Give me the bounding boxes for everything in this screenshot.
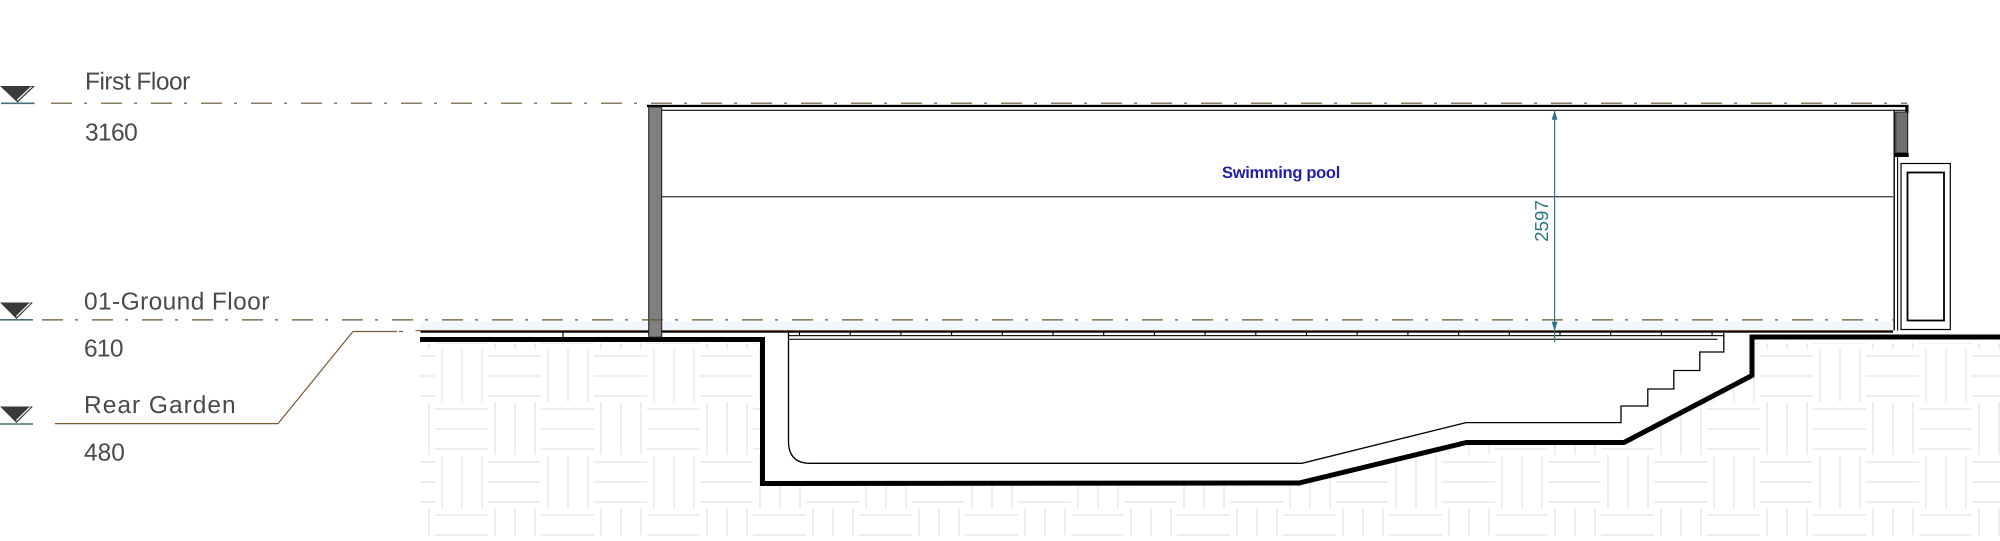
svg-text:480: 480 <box>84 440 125 467</box>
svg-text:Swimming pool: Swimming pool <box>1222 164 1340 182</box>
svg-text:3160: 3160 <box>85 120 137 147</box>
svg-text:2597: 2597 <box>1531 200 1552 242</box>
svg-text:01-Ground Floor: 01-Ground Floor <box>84 289 270 316</box>
svg-text:First Floor: First Floor <box>85 69 190 96</box>
svg-text:Rear Garden: Rear Garden <box>84 392 237 419</box>
svg-text:610: 610 <box>84 336 123 363</box>
